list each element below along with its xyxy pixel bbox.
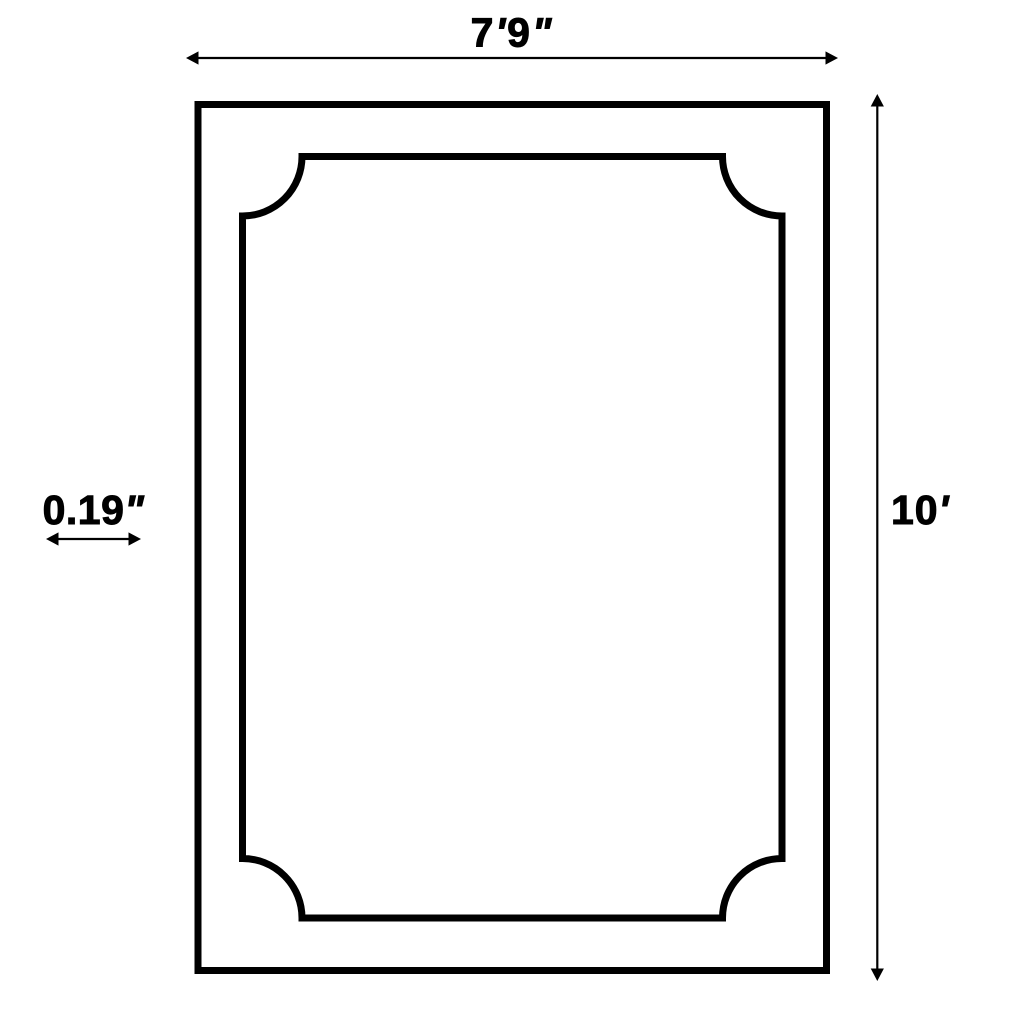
svg-text:10': 10'	[891, 487, 950, 533]
svg-text:0.19": 0.19"	[43, 487, 145, 533]
svg-text:7'9": 7'9"	[471, 10, 554, 56]
